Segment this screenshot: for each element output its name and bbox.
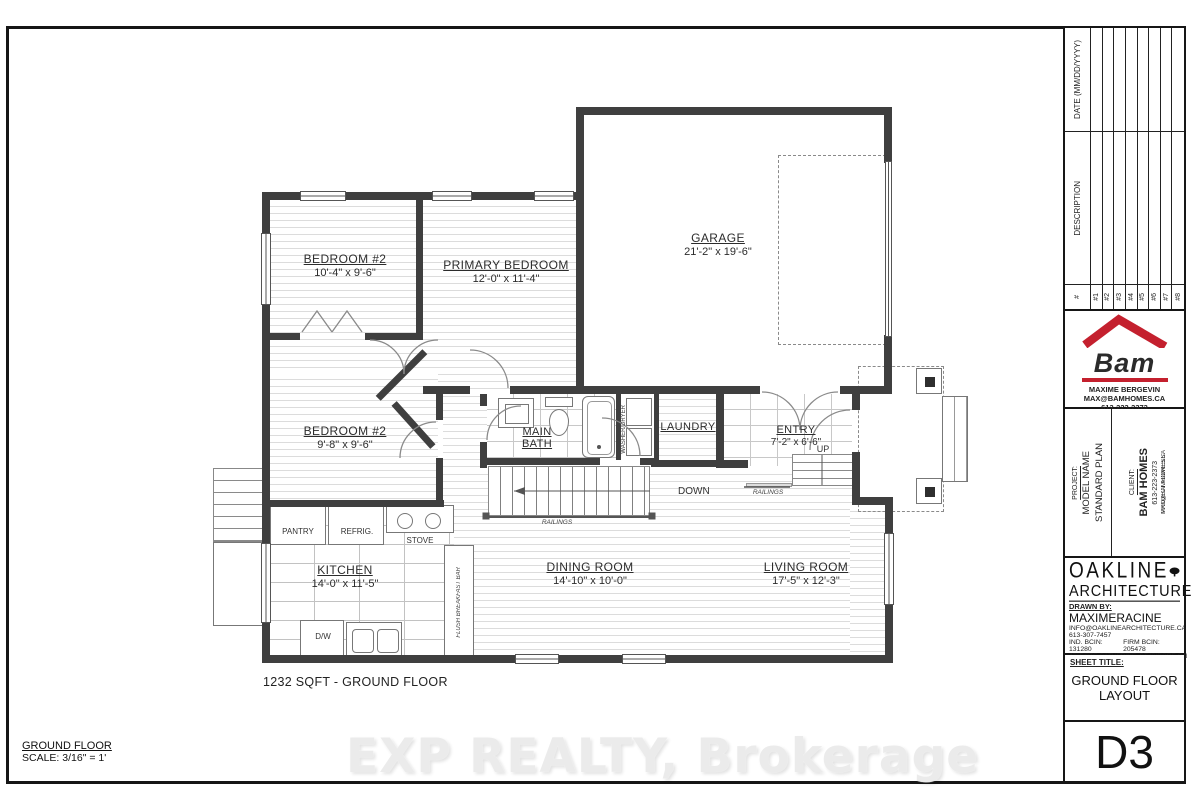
toilet-tank bbox=[545, 397, 573, 407]
room-dims: 7'-2" x 6'-6" bbox=[771, 437, 821, 448]
room-dims: 21'-2" x 19'-6" bbox=[684, 246, 752, 258]
room-dims: 10'-4" x 9'-6" bbox=[304, 267, 387, 279]
room-name: DINING ROOM bbox=[546, 560, 633, 574]
revision-cell bbox=[1091, 132, 1103, 285]
revision-row-number: #6 bbox=[1149, 285, 1161, 309]
garage-door-dashed-outline bbox=[778, 155, 886, 345]
room-name: BEDROOM #2 bbox=[304, 424, 387, 438]
wall bbox=[423, 386, 470, 394]
client-label: CLIENT: bbox=[1129, 469, 1136, 495]
breakfast-bar: FLUSH BREAKFAST BAR bbox=[444, 545, 474, 659]
bam-contact-name: MAXIME BERGEVIN bbox=[1065, 385, 1184, 394]
stove bbox=[386, 505, 454, 533]
revision-date-header-cell: DATE (MM/DD/YYYY) bbox=[1065, 28, 1091, 132]
scale-note: GROUND FLOOR SCALE: 3/16" = 1' bbox=[22, 740, 112, 764]
area-note: 1232 SQFT - GROUND FLOOR bbox=[263, 675, 448, 689]
revision-cell bbox=[1149, 132, 1161, 285]
revision-date-header: DATE (MM/DD/YYYY) bbox=[1073, 40, 1082, 119]
porch-steps bbox=[942, 396, 968, 482]
room-name: LAUNDRY bbox=[660, 421, 715, 433]
wall bbox=[651, 460, 718, 467]
revision-row-number: #1 bbox=[1091, 285, 1103, 309]
wall bbox=[416, 200, 423, 340]
wall bbox=[852, 394, 860, 410]
stove-label: STOVE bbox=[407, 536, 434, 545]
room-label-bedroom2-lower: BEDROOM #2 9'-8" x 9'-6" bbox=[304, 424, 387, 451]
firm-logo-row: OAKLINE bbox=[1069, 561, 1180, 583]
wall bbox=[884, 335, 892, 394]
stairs-down bbox=[488, 466, 650, 516]
wall bbox=[852, 497, 893, 505]
wall bbox=[436, 390, 443, 420]
refrigerator bbox=[328, 505, 384, 545]
revision-number-header: # bbox=[1074, 295, 1081, 299]
revision-cell bbox=[1114, 132, 1126, 285]
drawn-by-label: DRAWN BY: bbox=[1069, 602, 1180, 611]
project-client-block: PROJECT: MODEL NAME STANDARD PLAN CLIENT… bbox=[1063, 409, 1184, 558]
window bbox=[622, 654, 666, 664]
kitchen-sink bbox=[346, 622, 402, 658]
revision-table: DATE (MM/DD/YYYY) DESCRIPTION # #1 #2 #3… bbox=[1063, 28, 1184, 311]
bathtub bbox=[582, 396, 615, 458]
tree-icon bbox=[1169, 563, 1180, 581]
revision-row-label: #5 bbox=[1139, 293, 1146, 301]
room-name: PRIMARY BEDROOM bbox=[443, 258, 569, 272]
wall bbox=[654, 394, 659, 464]
revision-row-label: #2 bbox=[1104, 293, 1111, 301]
porch-post-core bbox=[925, 377, 935, 387]
revision-row-label: #1 bbox=[1093, 293, 1100, 301]
wall bbox=[716, 460, 748, 468]
room-name: KITCHEN bbox=[312, 563, 379, 577]
room-dims: 14'-10" x 10'-0" bbox=[546, 575, 633, 587]
sheet-title-line1: GROUND FLOOR bbox=[1070, 673, 1179, 688]
revision-number-header-cell: # bbox=[1065, 285, 1091, 309]
window bbox=[261, 543, 271, 623]
porch-post bbox=[916, 368, 942, 394]
watermark: EXP REALTY, Brokerage bbox=[346, 729, 979, 784]
revision-cell bbox=[1103, 132, 1115, 285]
bam-roof-icon bbox=[1077, 314, 1173, 348]
revision-row-number: #8 bbox=[1172, 285, 1184, 309]
window bbox=[884, 533, 894, 605]
wall bbox=[716, 394, 724, 466]
room-label-dining-room: DINING ROOM 14'-10" x 10'-0" bbox=[546, 560, 633, 587]
room-label-living-room: LIVING ROOM 17'-5" x 12'-3" bbox=[764, 560, 848, 587]
firm-ind-bcin: IND. BCIN: 131280 bbox=[1069, 639, 1123, 653]
bathtub-drain bbox=[597, 445, 601, 449]
pantry-label: PANTRY bbox=[282, 527, 314, 536]
revision-cell bbox=[1126, 132, 1138, 285]
wall bbox=[480, 458, 600, 465]
window bbox=[300, 191, 346, 201]
client-phone: 613-223-2373 bbox=[1152, 461, 1159, 505]
bath-sink bbox=[498, 398, 534, 428]
wall bbox=[262, 500, 444, 507]
wood-floor-bedrooms bbox=[270, 200, 576, 390]
revision-row-number: #3 bbox=[1114, 285, 1126, 309]
revision-description-header: DESCRIPTION bbox=[1073, 181, 1082, 236]
project-label: PROJECT: bbox=[1072, 466, 1079, 500]
revision-cell bbox=[1091, 28, 1103, 132]
wall bbox=[884, 107, 892, 163]
revision-cell bbox=[1138, 28, 1150, 132]
wall bbox=[480, 394, 487, 406]
wall bbox=[576, 107, 584, 394]
sink-basin bbox=[352, 629, 374, 653]
wall bbox=[262, 655, 893, 663]
bam-email: MAX@BAMHOMES.CA bbox=[1065, 394, 1184, 403]
revision-row-label: #8 bbox=[1175, 293, 1182, 301]
drawing-sheet: FLUSH BREAKFAST BAR WASHER/DRYER bbox=[0, 0, 1200, 800]
room-name: MAIN BATH bbox=[513, 426, 561, 450]
revision-cell bbox=[1114, 28, 1126, 132]
side-deck-steps bbox=[213, 468, 265, 542]
room-dims: 12'-0" x 11'-4" bbox=[443, 273, 569, 285]
room-name: BEDROOM #2 bbox=[304, 252, 387, 266]
drawn-by-name: MAXIMERACINE bbox=[1069, 611, 1180, 625]
window bbox=[261, 233, 271, 305]
room-name: ENTRY bbox=[771, 424, 821, 436]
client-name: BAM HOMES bbox=[1138, 448, 1150, 516]
room-label-main-bath: MAIN BATH bbox=[513, 426, 561, 450]
window bbox=[432, 191, 472, 201]
project-cell: PROJECT: MODEL NAME STANDARD PLAN bbox=[1065, 409, 1112, 556]
room-label-laundry: LAUNDRY bbox=[660, 421, 715, 433]
revision-row-number: #2 bbox=[1103, 285, 1115, 309]
scale-note-value: SCALE: 3/16" = 1' bbox=[22, 752, 112, 764]
firm-email: INFO@OAKLINEARCHITECTURE.CA bbox=[1069, 625, 1180, 632]
bam-red-rule bbox=[1082, 378, 1168, 382]
revision-cell bbox=[1161, 28, 1173, 132]
room-label-primary-bedroom: PRIMARY BEDROOM 12'-0" x 11'-4" bbox=[443, 258, 569, 285]
wall bbox=[510, 386, 760, 394]
sheet-title-line2: LAYOUT bbox=[1070, 688, 1179, 703]
room-name: GARAGE bbox=[684, 231, 752, 245]
porch-post bbox=[916, 478, 942, 504]
washer-dryer-label-wrap: WASHER/DRYER bbox=[618, 396, 630, 462]
wall bbox=[840, 386, 885, 394]
revision-description-header-cell: DESCRIPTION bbox=[1065, 132, 1091, 285]
entry-railing-strip bbox=[746, 483, 792, 487]
washer-dryer-label: WASHER/DRYER bbox=[621, 405, 627, 454]
revision-cell bbox=[1172, 132, 1184, 285]
sheet-title-label: SHEET TITLE: bbox=[1070, 658, 1179, 667]
pantry-cabinet bbox=[270, 505, 326, 545]
breakfast-bar-label: FLUSH BREAKFAST BAR bbox=[456, 567, 462, 638]
firm-firm-bcin: FIRM BCIN: 205478 bbox=[1123, 639, 1180, 653]
project-line2: STANDARD PLAN bbox=[1094, 443, 1105, 522]
wall bbox=[576, 107, 892, 115]
porch-post-core bbox=[925, 487, 935, 497]
window bbox=[534, 191, 574, 201]
revision-row-label: #7 bbox=[1163, 293, 1170, 301]
client-cell: CLIENT: BAM HOMES 613-223-2373 PROJECT A… bbox=[1112, 409, 1184, 556]
revision-row-label: #3 bbox=[1116, 293, 1123, 301]
wall bbox=[262, 333, 300, 340]
firm-bcin-row: IND. BCIN: 131280 FIRM BCIN: 205478 bbox=[1069, 639, 1180, 653]
revision-cell bbox=[1172, 28, 1184, 132]
project-line1: MODEL NAME bbox=[1081, 451, 1092, 515]
wood-floor-living-edge bbox=[850, 505, 888, 656]
revision-row-label: #6 bbox=[1151, 293, 1158, 301]
bam-logo-block: Bam MAXIME BERGEVIN MAX@BAMHOMES.CA 613-… bbox=[1063, 311, 1184, 409]
revision-row-number: #7 bbox=[1161, 285, 1173, 309]
client-email-overlay: MAX@BAMHOMES.CA bbox=[1161, 450, 1167, 514]
stove-burner-icon bbox=[425, 513, 441, 529]
room-dims: 17'-5" x 12'-3" bbox=[764, 575, 848, 587]
firm-block: OAKLINE ARCHITECTURE DRAWN BY: MAXIMERAC… bbox=[1063, 558, 1184, 655]
window bbox=[515, 654, 559, 664]
room-label-garage: GARAGE 21'-2" x 19'-6" bbox=[684, 231, 752, 258]
firm-name-line2: ARCHITECTURE bbox=[1069, 583, 1180, 602]
railings-label-entry: RAILINGS bbox=[753, 489, 783, 496]
revision-cell bbox=[1138, 132, 1150, 285]
garage-door-panel bbox=[885, 161, 892, 337]
room-label-bedroom2-upper: BEDROOM #2 10'-4" x 9'-6" bbox=[304, 252, 387, 279]
room-label-entry: ENTRY 7'-2" x 6'-6" bbox=[771, 424, 821, 448]
room-label-kitchen: KITCHEN 14'-0" x 11'-5" bbox=[312, 563, 379, 590]
railings-label-main: RAILINGS bbox=[542, 519, 572, 526]
room-name: LIVING ROOM bbox=[764, 560, 848, 574]
sheet-title-block: SHEET TITLE: GROUND FLOOR LAYOUT bbox=[1063, 655, 1184, 722]
room-dims: 9'-8" x 9'-6" bbox=[304, 439, 387, 451]
sheet-number-block: D3 bbox=[1063, 722, 1184, 781]
revision-cell bbox=[1161, 132, 1173, 285]
bath-sink-basin bbox=[505, 404, 529, 424]
revision-row-number: #4 bbox=[1126, 285, 1138, 309]
bam-logo-text: Bam bbox=[1065, 353, 1184, 375]
revision-row-label: #4 bbox=[1128, 293, 1135, 301]
wall bbox=[365, 333, 423, 340]
revision-cell bbox=[1103, 28, 1115, 132]
firm-name-line1: OAKLINE bbox=[1069, 559, 1169, 584]
stove-burner-icon bbox=[397, 513, 413, 529]
scale-note-title: GROUND FLOOR bbox=[22, 740, 112, 752]
revision-cell bbox=[1126, 28, 1138, 132]
side-deck-landing bbox=[213, 542, 265, 626]
dishwasher-label: D/W bbox=[315, 632, 331, 641]
firm-phone: 613-307-7457 bbox=[1069, 632, 1180, 639]
sheet-number: D3 bbox=[1095, 725, 1154, 779]
up-label: UP bbox=[817, 444, 830, 454]
room-dims: 14'-0" x 11'-5" bbox=[312, 578, 379, 590]
revision-row-number: #5 bbox=[1138, 285, 1150, 309]
down-label: DOWN bbox=[678, 486, 710, 497]
stairs-up bbox=[792, 454, 854, 486]
revision-cell bbox=[1149, 28, 1161, 132]
sink-basin bbox=[377, 629, 399, 653]
fridge-label: REFRIG. bbox=[341, 527, 373, 536]
